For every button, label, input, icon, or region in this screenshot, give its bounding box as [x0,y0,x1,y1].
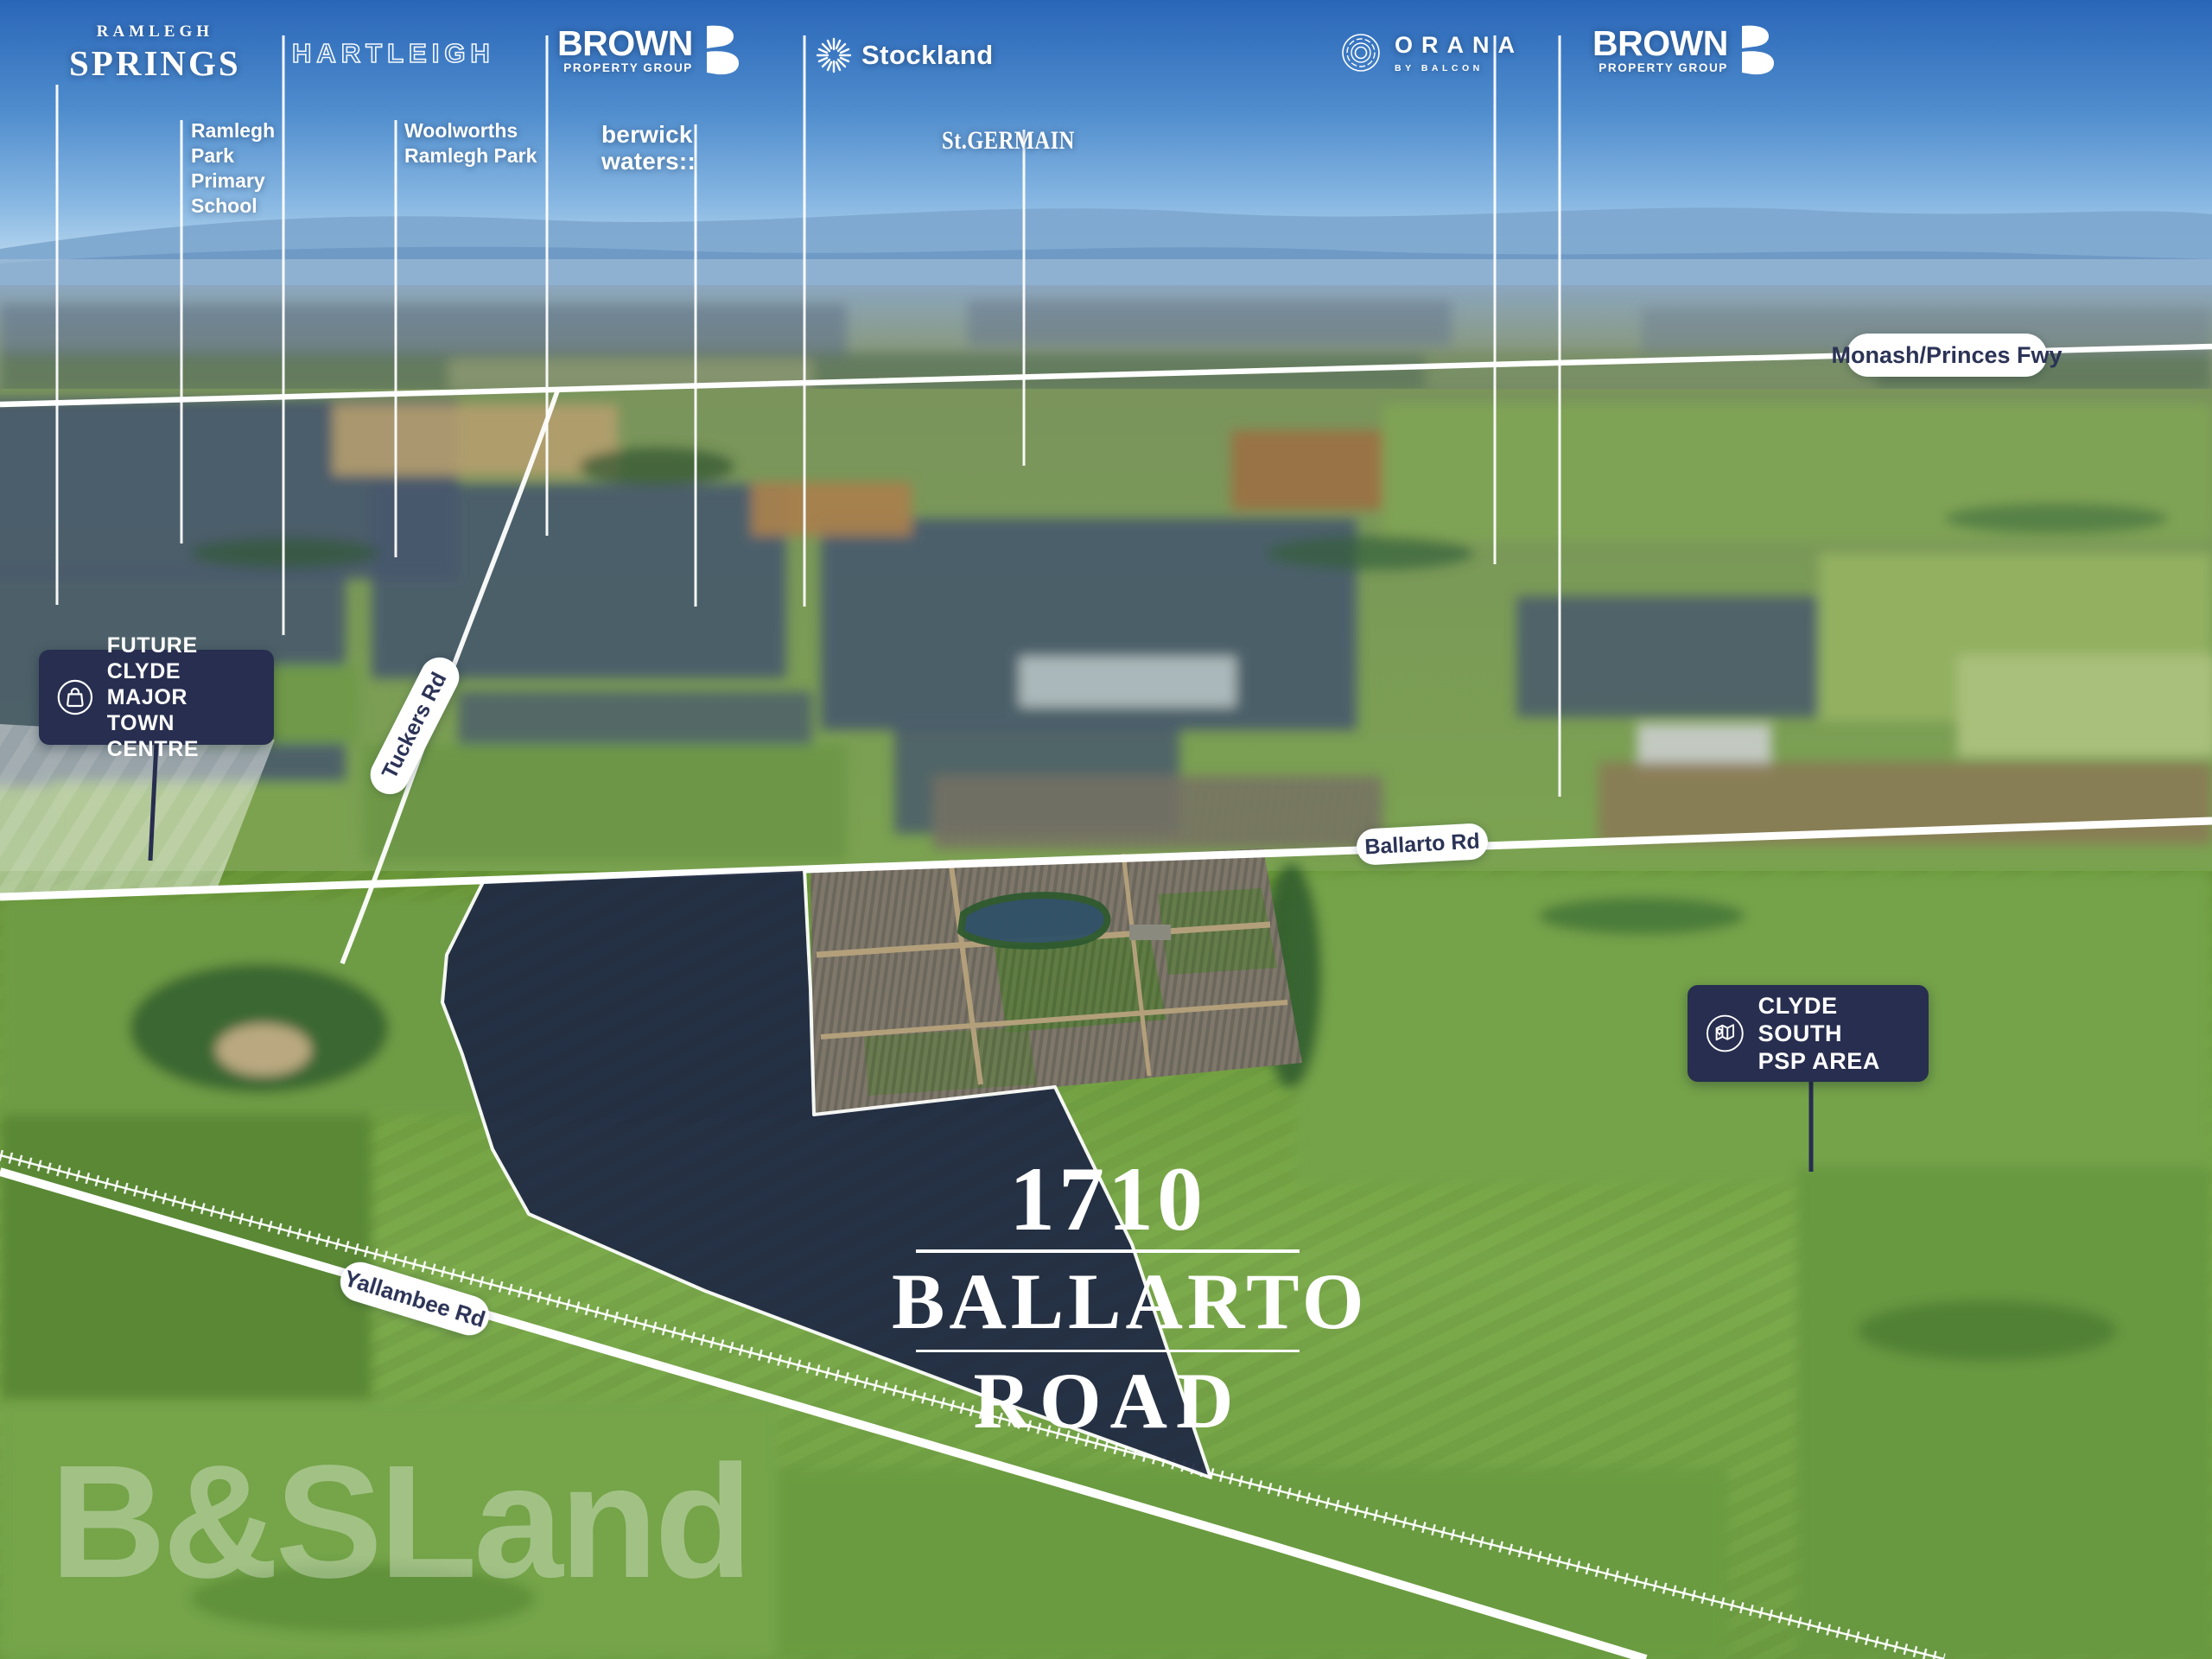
label-st-germain: St.GERMAIN [942,126,1075,156]
brown-wordmark: BROWN [557,27,693,60]
orana-subtitle: BY BALCON [1395,63,1523,73]
label-line: Ramlegh Park [404,143,537,168]
logo-orana: ORANA BY BALCON [1339,31,1523,74]
callout-future-clyde-major-town-centre: FUTURE CLYDE MAJOR TOWN CENTRE [39,650,274,745]
divider [916,1350,1300,1353]
road-badge-monash-princes-fwy: Monash/Princes Fwy [1847,334,2047,377]
brown-subtitle: PROPERTY GROUP [557,61,693,74]
site-address: 1710 BALLARTO ROAD [892,1156,1324,1442]
orana-wordmark: ORANA [1395,32,1523,59]
logo-hartleigh: HARTLEIGH [292,38,495,69]
label-line: Woolworths [404,118,537,143]
divider [916,1249,1300,1253]
orana-rings-icon [1339,31,1382,74]
label-line: School [191,194,275,219]
callout-line: CENTRE [107,736,257,762]
callout-line: FUTURE CLYDE [107,632,257,684]
callout-clyde-south-psp-area: CLYDE SOUTH PSP AREA [1688,985,1929,1082]
label-ramlegh-park-primary-school: Ramlegh Park Primary School [191,118,275,219]
label-line: berwick [601,121,696,148]
callout-line: MAJOR TOWN [107,684,257,736]
bs-land-watermark: B&SLand [50,1445,749,1600]
stockland-wordmark: Stockland [861,40,994,71]
site-address-road: ROAD [892,1359,1324,1442]
brown-subtitle: PROPERTY GROUP [1592,61,1728,74]
logo-ramlegh-springs-bottom: SPRINGS [69,42,241,84]
aerial-marketing-map: B&SLand RAMLEGH SPRINGS HARTLEIGH BROWN … [0,0,2212,1659]
label-line: Primary [191,168,275,194]
label-woolworths-ramlegh-park: Woolworths Ramlegh Park [404,118,537,168]
farm-dam [961,895,1107,946]
label-berwick-waters: berwick waters:: [601,121,696,175]
label-line: waters:: [601,148,696,175]
site-address-number: 1710 [892,1156,1324,1243]
logo-brown-property-group-right: BROWN PROPERTY GROUP [1592,24,1775,76]
logo-ramlegh-springs: RAMLEGH SPRINGS [69,22,241,84]
brown-b-monogram-icon [703,24,740,76]
stockland-sunburst-icon [815,36,853,74]
label-line: Ramlegh [191,118,275,143]
brown-b-monogram-icon [1738,24,1775,76]
logo-brown-property-group-left: BROWN PROPERTY GROUP [557,24,740,76]
callout-line: PSP AREA [1758,1047,1911,1075]
logo-ramlegh-springs-top: RAMLEGH [69,22,241,41]
road-badge-ballarto-rd: Ballarto Rd [1356,823,1489,866]
site-address-street: BALLARTO [892,1260,1324,1343]
shopping-bag-icon [56,676,94,719]
map-pin-icon [1705,1011,1745,1056]
logo-stockland: Stockland [815,36,994,74]
brown-wordmark: BROWN [1592,27,1728,60]
label-line: Park [191,143,275,168]
callout-line: CLYDE SOUTH [1758,992,1911,1047]
